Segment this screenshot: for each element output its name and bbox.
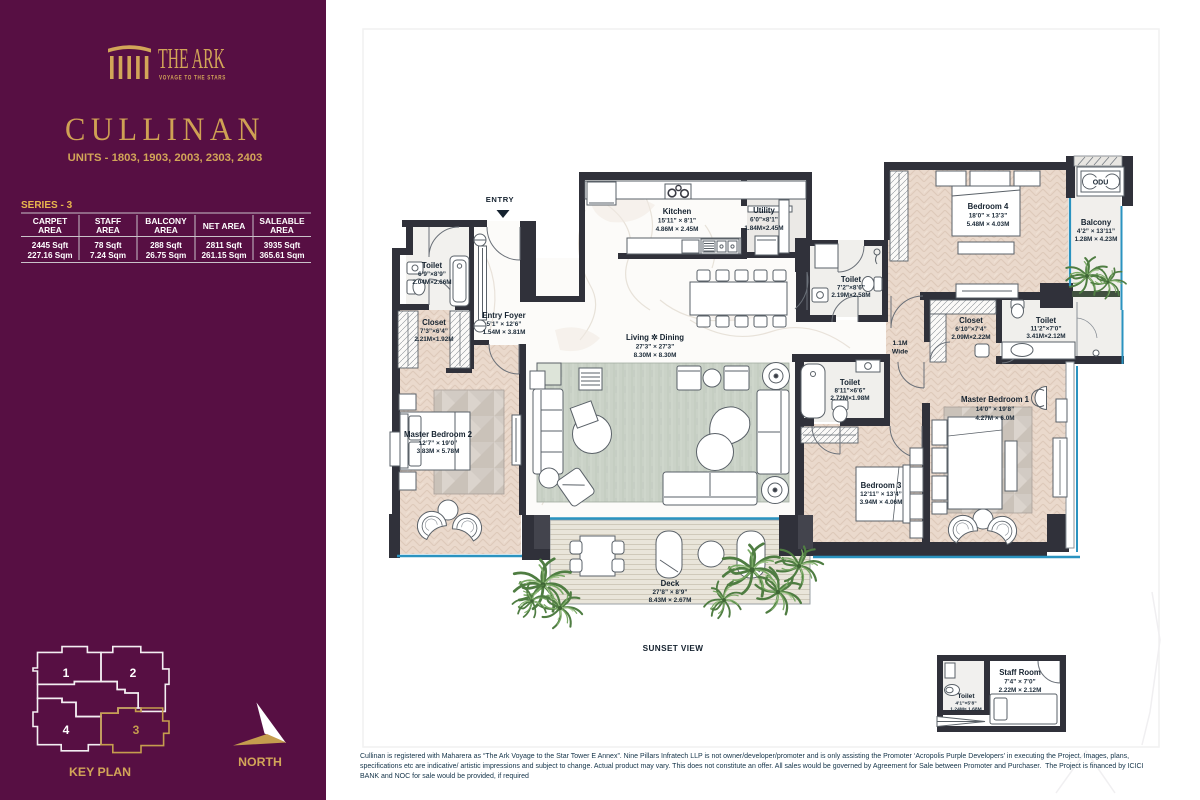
- svg-text:ODU: ODU: [1093, 180, 1109, 187]
- svg-text:4’2” × 13’11”: 4’2” × 13’11”: [1077, 228, 1115, 235]
- svg-text:Bedroom 3: Bedroom 3: [861, 481, 902, 490]
- svg-text:2.21M×1.92M: 2.21M×1.92M: [414, 336, 453, 343]
- svg-text:Wide: Wide: [892, 349, 908, 356]
- svg-text:6’0”×8’1”: 6’0”×8’1”: [750, 217, 778, 224]
- svg-text:Kitchen: Kitchen: [663, 207, 692, 216]
- svg-text:2.09M×2.22M: 2.09M×2.22M: [951, 334, 990, 341]
- svg-text:Staff Room: Staff Room: [999, 668, 1041, 677]
- svg-text:4.86M × 2.45M: 4.86M × 2.45M: [656, 226, 699, 233]
- svg-text:27’3” × 27’3”: 27’3” × 27’3”: [636, 344, 675, 351]
- svg-text:18’0” × 13’3”: 18’0” × 13’3”: [969, 213, 1008, 220]
- svg-text:11’2”×7’0”: 11’2”×7’0”: [1030, 326, 1061, 333]
- svg-text:8.43M × 2.67M: 8.43M × 2.67M: [649, 597, 692, 604]
- svg-text:4.27M × 6.0M: 4.27M × 6.0M: [975, 415, 1014, 422]
- svg-text:Living ✲ Dining: Living ✲ Dining: [626, 333, 684, 342]
- svg-text:7’2”×8’6”: 7’2”×8’6”: [837, 285, 865, 292]
- svg-text:Toilet: Toilet: [840, 378, 861, 387]
- svg-text:12’11” × 13’4”: 12’11” × 13’4”: [860, 491, 902, 498]
- svg-text:Balcony: Balcony: [1081, 218, 1112, 227]
- svg-text:Toilet: Toilet: [841, 275, 862, 284]
- svg-text:27’8” × 8’9”: 27’8” × 8’9”: [653, 589, 688, 596]
- svg-text:1.1M: 1.1M: [892, 340, 907, 347]
- svg-text:8’11”×6’6”: 8’11”×6’6”: [834, 388, 865, 395]
- svg-text:7’3”×6’4”: 7’3”×6’4”: [420, 328, 448, 335]
- svg-text:Bedroom 4: Bedroom 4: [968, 202, 1009, 211]
- svg-text:1.54M × 3.81M: 1.54M × 3.81M: [483, 329, 526, 336]
- svg-text:5’1” × 12’6”: 5’1” × 12’6”: [487, 321, 522, 328]
- svg-text:1.84M×2.45M: 1.84M×2.45M: [744, 225, 783, 232]
- svg-text:ENTRY: ENTRY: [486, 195, 514, 204]
- svg-text:SUNSET VIEW: SUNSET VIEW: [643, 644, 704, 653]
- svg-text:14’0” × 19’8”: 14’0” × 19’8”: [976, 406, 1015, 413]
- svg-text:1.28M × 4.23M: 1.28M × 4.23M: [1075, 236, 1118, 243]
- svg-text:Closet: Closet: [959, 316, 983, 325]
- svg-text:6’9”×8’9”: 6’9”×8’9”: [418, 271, 446, 278]
- svg-text:4’1”×5’8”: 4’1”×5’8”: [955, 701, 977, 707]
- svg-text:2.04M×2.66M: 2.04M×2.66M: [412, 279, 451, 286]
- svg-text:2.72M×1.98M: 2.72M×1.98M: [830, 395, 869, 402]
- svg-text:2.22M × 2.12M: 2.22M × 2.12M: [999, 687, 1042, 694]
- svg-text:1.24M× 1.68M: 1.24M× 1.68M: [950, 707, 981, 713]
- svg-text:Toilet: Toilet: [957, 693, 975, 700]
- svg-text:7’4” × 7’0”: 7’4” × 7’0”: [1004, 679, 1035, 686]
- svg-text:Toilet: Toilet: [1036, 316, 1057, 325]
- svg-text:6’10”×7’4”: 6’10”×7’4”: [955, 326, 986, 333]
- svg-text:Deck: Deck: [661, 579, 680, 588]
- svg-text:8.30M × 8.30M: 8.30M × 8.30M: [634, 352, 677, 359]
- svg-text:Utility: Utility: [753, 206, 775, 215]
- svg-text:15’11” × 8’1”: 15’11” × 8’1”: [658, 218, 696, 225]
- svg-text:Master Bedroom 1: Master Bedroom 1: [961, 395, 1030, 404]
- svg-text:3.41M×2.12M: 3.41M×2.12M: [1026, 333, 1065, 340]
- svg-text:12’7” × 19’0”: 12’7” × 19’0”: [419, 440, 458, 447]
- svg-text:3.94M × 4.06M: 3.94M × 4.06M: [860, 499, 903, 506]
- svg-text:Closet: Closet: [422, 318, 446, 327]
- svg-text:3.83M × 5.78M: 3.83M × 5.78M: [417, 448, 460, 455]
- svg-text:2.19M×2.58M: 2.19M×2.58M: [831, 292, 870, 299]
- svg-text:5.48M × 4.03M: 5.48M × 4.03M: [967, 221, 1010, 228]
- svg-text:Entry Foyer: Entry Foyer: [482, 311, 525, 320]
- svg-text:Master Bedroom 2: Master Bedroom 2: [404, 430, 473, 439]
- svg-text:Toilet: Toilet: [422, 261, 443, 270]
